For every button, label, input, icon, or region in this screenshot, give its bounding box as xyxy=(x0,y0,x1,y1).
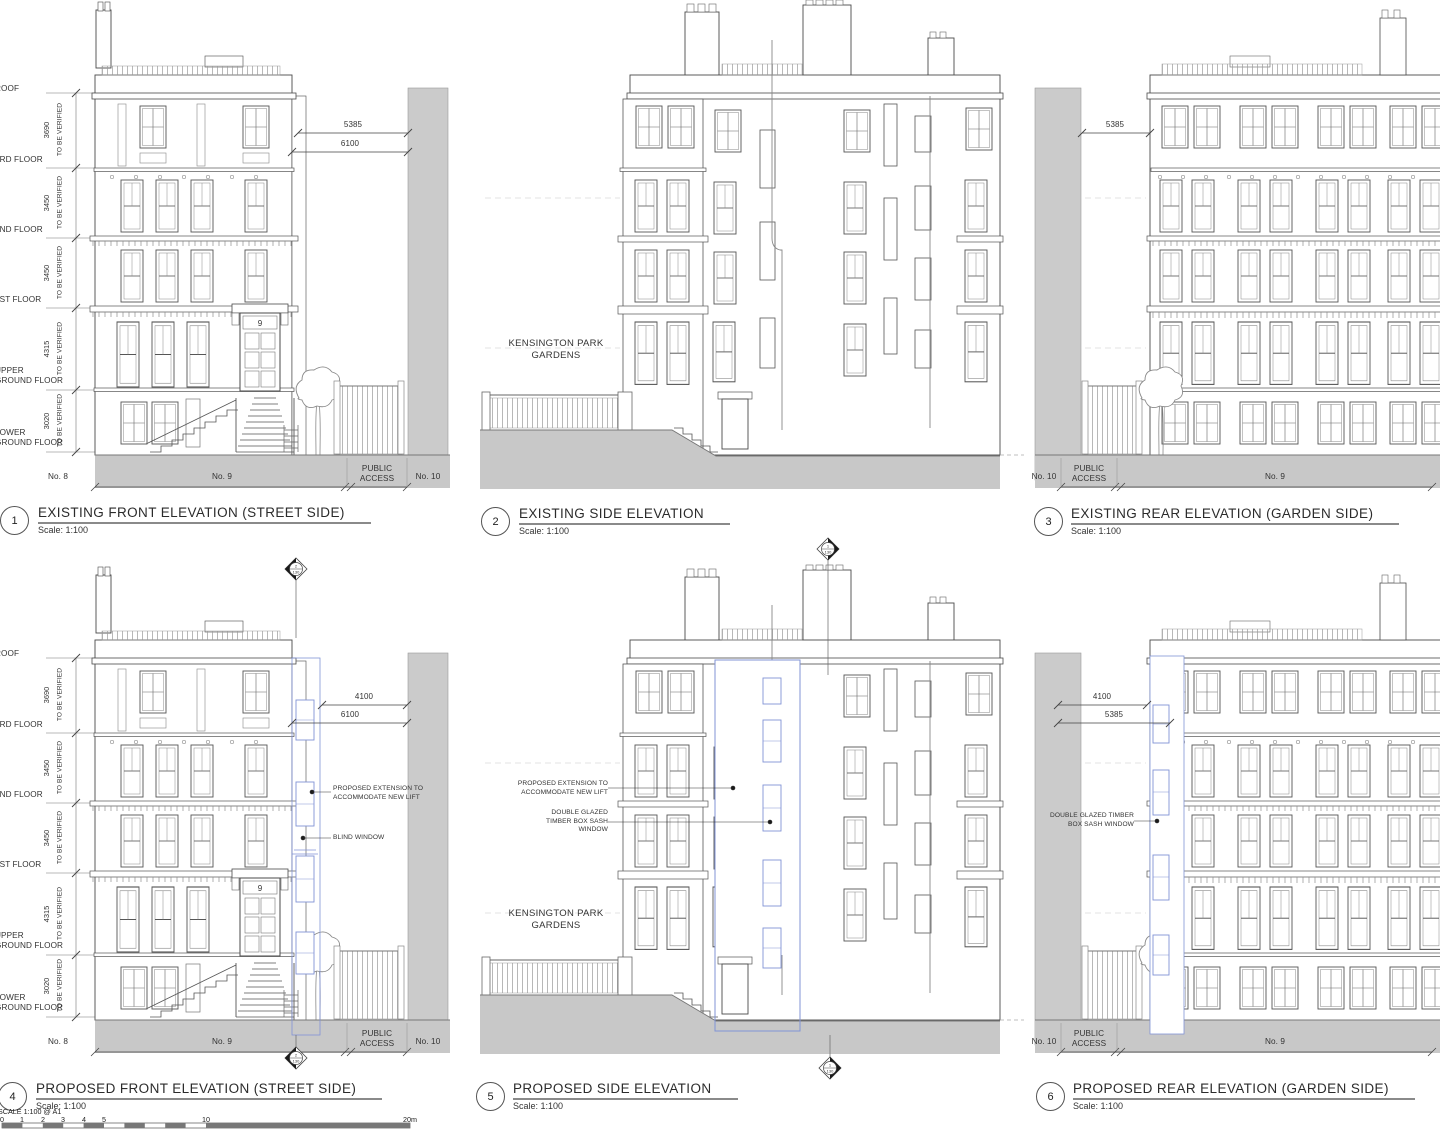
drawing-title-5: PROPOSED SIDE ELEVATION Scale: 1:100 xyxy=(513,1080,738,1111)
level-note: TO BE VERIFIED xyxy=(57,98,66,162)
level-note: TO BE VERIFIED xyxy=(57,241,66,305)
drawing-title-1: EXISTING FRONT ELEVATION (STREET SIDE) S… xyxy=(38,504,371,535)
level-label-lower-ground: LOWER GROUND FLOOR xyxy=(0,428,63,447)
street-name-label: KENSINGTON PARK GARDENS xyxy=(480,338,632,363)
scale-bar-segments xyxy=(2,1123,410,1128)
plot-label-no9: No. 9 xyxy=(1180,472,1370,482)
title-scale: Scale: 1:100 xyxy=(38,525,371,535)
level-dim: 3020 xyxy=(42,399,52,443)
level-dim: 3450 xyxy=(42,746,52,790)
plot-label-no10: No. 10 xyxy=(410,1037,446,1047)
drawing-number-5: 5 xyxy=(476,1082,505,1111)
plot-label-no10: No. 10 xyxy=(1026,1037,1062,1047)
level-note: TO BE VERIFIED xyxy=(57,663,66,727)
level-label-3rd: 3RD FLOOR xyxy=(0,155,43,165)
drawing-number-2: 2 xyxy=(481,507,510,536)
drawing-number-1: 1 xyxy=(0,506,29,535)
level-label-1st: 1ST FLOOR xyxy=(0,295,41,305)
drawing-number-3: 3 xyxy=(1034,507,1063,536)
title-text: PROPOSED REAR ELEVATION (GARDEN SIDE) xyxy=(1073,1081,1415,1100)
level-note: TO BE VERIFIED xyxy=(57,806,66,870)
level-note: TO BE VERIFIED xyxy=(57,171,66,235)
public-access-label: PUBLIC ACCESS xyxy=(351,1029,403,1048)
level-label-upper-ground: UPPER GROUND FLOOR xyxy=(0,366,63,385)
existing-side-elevation xyxy=(460,0,1030,545)
level-dim: 3450 xyxy=(42,181,52,225)
level-dim: 3690 xyxy=(42,673,52,717)
level-note: TO BE VERIFIED xyxy=(57,954,66,1018)
drawing-title-4: PROPOSED FRONT ELEVATION (STREET SIDE) S… xyxy=(36,1080,382,1111)
dim-5385: 5385 xyxy=(1095,120,1135,129)
scale-bar xyxy=(0,1110,440,1130)
drawing-title-6: PROPOSED REAR ELEVATION (GARDEN SIDE) Sc… xyxy=(1073,1080,1415,1111)
section-marker-sheet: 130 xyxy=(293,1059,300,1064)
level-dim: 4315 xyxy=(42,892,52,936)
level-note: TO BE VERIFIED xyxy=(57,882,66,946)
level-dim: 3450 xyxy=(42,251,52,295)
level-note: TO BE VERIFIED xyxy=(57,736,66,800)
dim-5385: 5385 xyxy=(333,120,373,129)
drawing-title-2: EXISTING SIDE ELEVATION Scale: 1:100 xyxy=(519,505,730,536)
plot-label-no8: No. 8 xyxy=(38,472,78,482)
level-label-1st: 1ST FLOOR xyxy=(0,860,41,870)
section-marker-sheet: 130 xyxy=(293,570,300,575)
title-text: EXISTING REAR ELEVATION (GARDEN SIDE) xyxy=(1071,506,1399,525)
plot-label-no9: No. 9 xyxy=(1180,1037,1370,1047)
dim-6100: 6100 xyxy=(330,139,370,148)
dim-5385: 5385 xyxy=(1094,710,1134,719)
sash-window-note: DOUBLE GLAZED TIMBER BOX SASH WINDOW xyxy=(528,809,608,835)
level-label-2nd: 2ND FLOOR xyxy=(0,225,43,235)
street-name-label: KENSINGTON PARK GARDENS xyxy=(480,908,632,933)
plot-label-no10: No. 10 xyxy=(410,472,446,482)
level-dim: 3450 xyxy=(42,816,52,860)
title-scale: Scale: 1:100 xyxy=(519,526,730,536)
level-label-2nd: 2ND FLOOR xyxy=(0,790,43,800)
title-text: PROPOSED FRONT ELEVATION (STREET SIDE) xyxy=(36,1081,382,1100)
level-dim: 4315 xyxy=(42,327,52,371)
title-text: EXISTING FRONT ELEVATION (STREET SIDE) xyxy=(38,505,371,524)
title-scale: Scale: 1:100 xyxy=(513,1101,738,1111)
plot-label-no9: No. 9 xyxy=(172,472,272,482)
blind-window-note: BLIND WINDOW xyxy=(333,834,413,843)
section-marker-sheet: 130 xyxy=(827,1069,834,1074)
plot-label-no9: No. 9 xyxy=(172,1037,272,1047)
section-marker-sheet: 130 xyxy=(825,550,832,555)
proposed-lift-extension xyxy=(1150,656,1184,1034)
dim-4100: 4100 xyxy=(344,692,384,701)
level-note: TO BE VERIFIED xyxy=(57,389,66,453)
leader-line xyxy=(1134,819,1159,823)
drawing-title-3: EXISTING REAR ELEVATION (GARDEN SIDE) Sc… xyxy=(1071,505,1399,536)
offset-dimension xyxy=(1078,129,1154,137)
plot-label-no10: No. 10 xyxy=(1026,472,1062,482)
title-scale: Scale: 1:100 xyxy=(1071,526,1399,536)
dim-6100: 6100 xyxy=(330,710,370,719)
public-access-label: PUBLIC ACCESS xyxy=(351,464,403,483)
level-label-upper-ground: UPPER GROUND FLOOR xyxy=(0,931,63,950)
level-note: TO BE VERIFIED xyxy=(57,317,66,381)
title-text: PROPOSED SIDE ELEVATION xyxy=(513,1081,738,1100)
lift-extension-note: PROPOSED EXTENSION TO ACCOMMODATE NEW LI… xyxy=(333,785,438,802)
drawing-number-6: 6 xyxy=(1036,1082,1065,1111)
level-label-3rd: 3RD FLOOR xyxy=(0,720,43,730)
lift-extension-note: PROPOSED EXTENSION TO ACCOMMODATE NEW LI… xyxy=(508,780,608,797)
public-access-label: PUBLIC ACCESS xyxy=(1063,1029,1115,1048)
public-access-label: PUBLIC ACCESS xyxy=(1063,464,1115,483)
level-label-roof: ROOF xyxy=(0,649,19,659)
dim-4100: 4100 xyxy=(1082,692,1122,701)
sash-window-note: DOUBLE GLAZED TIMBER BOX SASH WINDOW xyxy=(1038,812,1134,829)
level-dim: 3690 xyxy=(42,108,52,152)
title-scale: Scale: 1:100 xyxy=(1073,1101,1415,1111)
level-label-lower-ground: LOWER GROUND FLOOR xyxy=(0,993,63,1012)
architectural-drawing-sheet: 9 xyxy=(0,0,1440,1130)
plot-label-no8: No. 8 xyxy=(38,1037,78,1047)
level-dim: 3020 xyxy=(42,964,52,1008)
level-label-roof: ROOF xyxy=(0,84,19,94)
title-text: EXISTING SIDE ELEVATION xyxy=(519,506,730,525)
